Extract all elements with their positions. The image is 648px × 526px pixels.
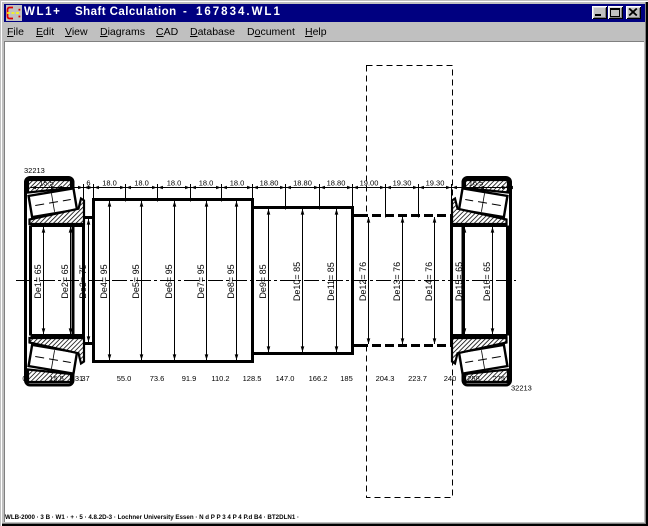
svg-text:19.00: 19.00	[360, 179, 379, 188]
svg-text:73.6: 73.6	[150, 374, 165, 383]
svg-text:18.0: 18.0	[230, 179, 245, 188]
svg-text:De12= 76: De12= 76	[358, 262, 368, 301]
svg-text:De4= 95: De4= 95	[99, 264, 109, 298]
svg-text:55.0: 55.0	[117, 374, 132, 383]
svg-text:0: 0	[22, 374, 26, 383]
svg-text:223.7: 223.7	[408, 374, 427, 383]
svg-text:De9= 85: De9= 85	[258, 264, 268, 298]
svg-text:110.2: 110.2	[211, 374, 229, 383]
svg-text:19.30: 19.30	[393, 179, 412, 188]
svg-text:91.9: 91.9	[182, 374, 197, 383]
svg-text:18.0: 18.0	[167, 179, 182, 188]
svg-text:37: 37	[81, 374, 89, 383]
svg-text:De10= 85: De10= 85	[292, 262, 302, 301]
svg-text:147.0: 147.0	[276, 374, 295, 383]
svg-text:De8= 95: De8= 95	[226, 264, 236, 298]
svg-text:15.5: 15.5	[49, 374, 64, 383]
svg-text:18.80: 18.80	[327, 179, 346, 188]
svg-text:166.2: 166.2	[309, 374, 328, 383]
svg-text:De3= 75: De3= 75	[78, 264, 88, 298]
svg-text:De6= 95: De6= 95	[164, 264, 174, 298]
svg-text:258: 258	[467, 374, 480, 383]
svg-text:32213: 32213	[511, 384, 532, 393]
svg-text:15.5: 15.5	[39, 179, 54, 188]
svg-text:De1= 65: De1= 65	[33, 264, 43, 298]
svg-text:18.0: 18.0	[134, 179, 149, 188]
svg-text:De16= 65: De16= 65	[482, 262, 492, 301]
svg-text:18.0: 18.0	[199, 179, 214, 188]
svg-text:185: 185	[340, 374, 353, 383]
svg-text:18.80: 18.80	[293, 179, 312, 188]
svg-text:6: 6	[86, 179, 90, 188]
svg-text:275.5: 275.5	[493, 374, 512, 383]
svg-text:18.0: 18.0	[102, 179, 117, 188]
svg-text:204.3: 204.3	[376, 374, 395, 383]
svg-text:De2= 65: De2= 65	[60, 264, 70, 298]
svg-text:De14= 76: De14= 76	[424, 262, 434, 301]
svg-text:De5= 95: De5= 95	[131, 264, 141, 298]
svg-text:De13= 76: De13= 76	[392, 262, 402, 301]
svg-text:18.80: 18.80	[260, 179, 279, 188]
svg-text:240: 240	[444, 374, 457, 383]
svg-text:16.5: 16.5	[469, 179, 484, 188]
svg-text:De7= 95: De7= 95	[196, 264, 206, 298]
svg-text:128.5: 128.5	[243, 374, 262, 383]
svg-text:32213: 32213	[24, 166, 45, 175]
svg-text:19.30: 19.30	[426, 179, 445, 188]
svg-text:De11= 85: De11= 85	[326, 262, 336, 301]
